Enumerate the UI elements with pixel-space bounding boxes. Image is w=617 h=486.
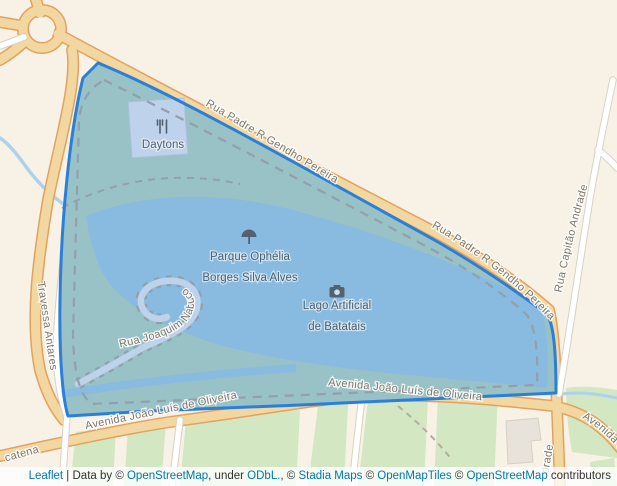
poi-label-parque-line2: Borges Silva Alves (202, 272, 297, 284)
poi-label-lago-line2: de Batatais (308, 321, 366, 333)
stadia-maps-link[interactable]: Stadia Maps (298, 470, 362, 482)
leaflet-link[interactable]: Leaflet (29, 470, 64, 482)
poi-label-parque-line1: Parque Ophélia (210, 251, 291, 263)
attribution-text: | Data by © (63, 470, 127, 482)
poi-label-daytons: Daytons (142, 139, 184, 151)
attribution-text: contributors (548, 470, 611, 482)
poi-label-lago-line1: Lago Artificial (303, 300, 371, 312)
map-viewport[interactable]: Rua Padre R Gendho Pereira Rua Padre R G… (0, 0, 617, 486)
attribution-bar: Leaflet | Data by © OpenStreetMap, under… (0, 467, 617, 486)
attribution-text: , under (208, 470, 247, 482)
map-canvas[interactable]: Rua Padre R Gendho Pereira Rua Padre R G… (0, 0, 617, 486)
attribution-text: © (362, 470, 377, 482)
attribution-text: © (452, 470, 467, 482)
openmaptiles-link[interactable]: OpenMapTiles (377, 470, 451, 482)
openstreetmap-link-2[interactable]: OpenStreetMap (467, 470, 548, 482)
openstreetmap-link[interactable]: OpenStreetMap (127, 470, 208, 482)
roundabout-island (30, 17, 54, 41)
odbl-link[interactable]: ODbL. (247, 470, 280, 482)
attribution-text: , © (280, 470, 298, 482)
